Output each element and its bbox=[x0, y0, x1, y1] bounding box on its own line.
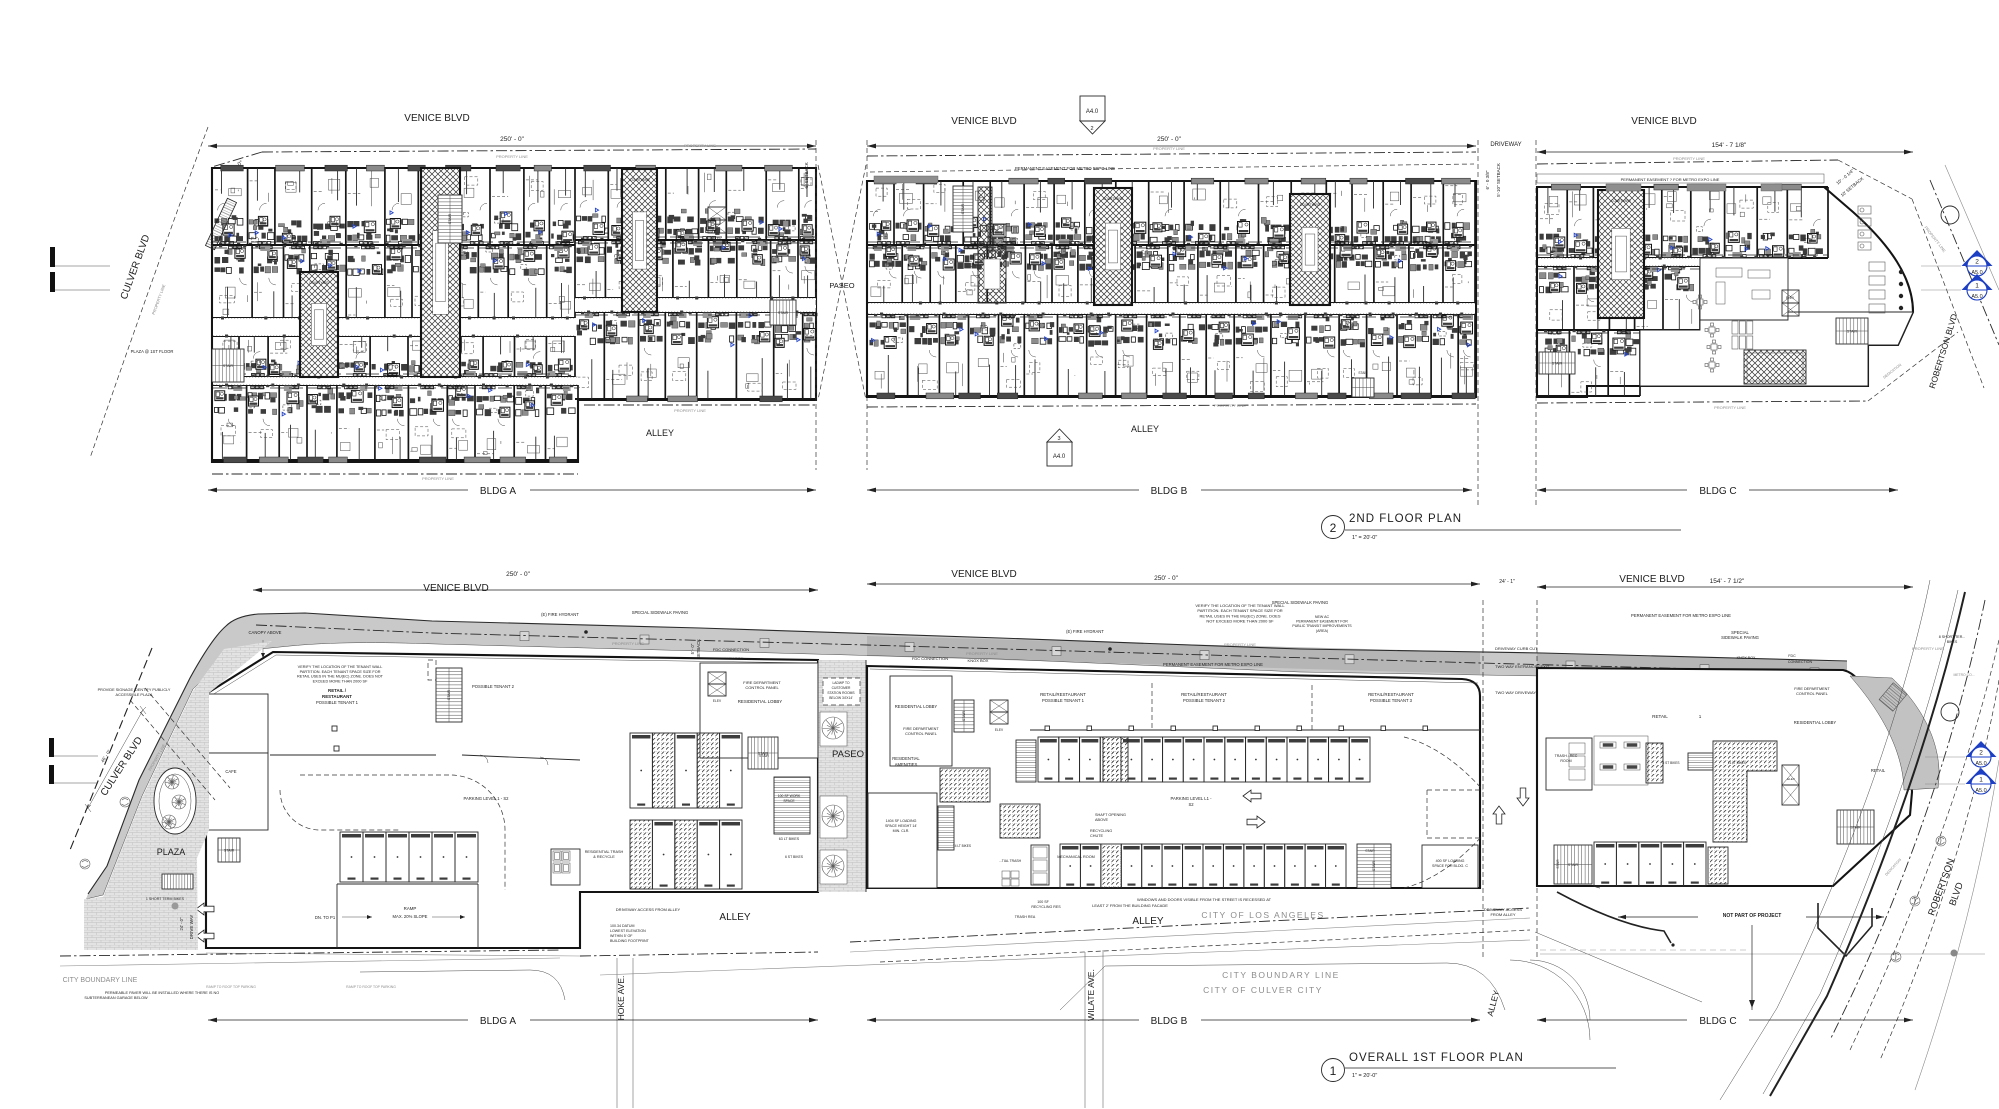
svg-text:STAIR: STAIR bbox=[447, 689, 451, 700]
svg-text:STAIR: STAIR bbox=[1365, 849, 1375, 853]
svg-text:STATION ROOMS: STATION ROOMS bbox=[827, 691, 855, 695]
svg-text:2: 2 bbox=[1979, 750, 1983, 757]
svg-text:RAMP TO ROOF TOP PARKING: RAMP TO ROOF TOP PARKING bbox=[206, 985, 256, 989]
svg-text:1" = 20'-0": 1" = 20'-0" bbox=[1352, 535, 1377, 541]
svg-text:PASEO: PASEO bbox=[832, 749, 864, 760]
svg-text:LEAST 2' FROM THE BUILDING FAC: LEAST 2' FROM THE BUILDING FACADE bbox=[1092, 903, 1168, 908]
svg-text:1: 1 bbox=[1979, 777, 1983, 784]
svg-text:RAMP: RAMP bbox=[404, 906, 417, 911]
svg-text:RESIDENTIAL LOBBY: RESIDENTIAL LOBBY bbox=[1794, 720, 1837, 725]
svg-text:ABOVE: ABOVE bbox=[1095, 818, 1109, 822]
svg-text:5'-10" SETBACK: 5'-10" SETBACK bbox=[1496, 163, 1501, 197]
svg-text:(E) FIRE HYDRANT: (E) FIRE HYDRANT bbox=[1066, 629, 1104, 634]
svg-text:PLAZA @ 1ST FLOOR: PLAZA @ 1ST FLOOR bbox=[131, 349, 174, 354]
svg-text:RETAIL: RETAIL bbox=[1871, 768, 1886, 773]
svg-text:CITY BOUNDARY LINE: CITY BOUNDARY LINE bbox=[63, 977, 138, 984]
svg-text:POSSIBLE TENANT 2: POSSIBLE TENANT 2 bbox=[1183, 698, 1226, 703]
svg-text:RESIDENTIAL: RESIDENTIAL bbox=[892, 756, 920, 761]
svg-text:CANOPY ABOVE: CANOPY ABOVE bbox=[249, 630, 282, 635]
svg-text:KNOX BOX: KNOX BOX bbox=[1737, 656, 1756, 660]
svg-text:PERMANENT EASEMENT FOR METRO E: PERMANENT EASEMENT FOR METRO EXPO LINE bbox=[1163, 662, 1263, 667]
svg-text:1: 1 bbox=[1699, 714, 1702, 719]
svg-text:250' - 0": 250' - 0" bbox=[1154, 575, 1178, 582]
svg-text:CONTROL PANEL: CONTROL PANEL bbox=[1796, 692, 1828, 696]
svg-text:1" = 20'-0": 1" = 20'-0" bbox=[1352, 1073, 1377, 1079]
svg-text:VENICE BLVD: VENICE BLVD bbox=[951, 569, 1016, 580]
svg-text:CITY OF CULVER CITY: CITY OF CULVER CITY bbox=[1203, 985, 1323, 995]
svg-text:MECHANICAL ROOM: MECHANICAL ROOM bbox=[1057, 855, 1095, 859]
svg-text:WINDOWS AND DOORS VISIBLE FROM: WINDOWS AND DOORS VISIBLE FROM THE STREE… bbox=[1137, 897, 1272, 902]
svg-text:MIN. CLR.: MIN. CLR. bbox=[893, 829, 910, 833]
svg-text:3: 3 bbox=[1057, 436, 1060, 442]
svg-text:PROPERTY LINE: PROPERTY LINE bbox=[1224, 642, 1256, 647]
svg-text:SIDEWALK PAVING: SIDEWALK PAVING bbox=[1721, 635, 1759, 640]
svg-text:STAIR: STAIR bbox=[223, 364, 234, 368]
svg-text:STAIR: STAIR bbox=[1568, 863, 1579, 867]
svg-text:RETAIL/RESTAURANT: RETAIL/RESTAURANT bbox=[1040, 692, 1086, 697]
svg-text:STAIR: STAIR bbox=[778, 311, 789, 315]
svg-text:CAFE: CAFE bbox=[225, 769, 236, 774]
svg-text:S2: S2 bbox=[1188, 802, 1194, 807]
svg-text:PARTITION. EACH TENANT SPACE S: PARTITION. EACH TENANT SPACE SIZE FOR bbox=[300, 670, 381, 674]
svg-text:DRIVEWAY: DRIVEWAY bbox=[1490, 142, 1521, 148]
svg-text:BLDG C: BLDG C bbox=[1699, 1016, 1736, 1027]
svg-text:154' - 7 1/2": 154' - 7 1/2" bbox=[1710, 578, 1745, 585]
svg-text:PROPERTY LINE: PROPERTY LINE bbox=[674, 408, 706, 413]
svg-text:WILATE AVE.: WILATE AVE. bbox=[1086, 969, 1096, 1021]
svg-text:FROM ALLEY: FROM ALLEY bbox=[1490, 912, 1515, 917]
svg-text:ELEV: ELEV bbox=[995, 728, 1004, 732]
svg-text:PERMEABLE PAVER WILL BE INSTAL: PERMEABLE PAVER WILL BE INSTALLED WHERE … bbox=[105, 991, 219, 995]
svg-text:CONNECTION: CONNECTION bbox=[1788, 660, 1813, 664]
svg-text:2: 2 bbox=[1090, 126, 1093, 132]
svg-text:ALLEY: ALLEY bbox=[719, 912, 750, 923]
svg-text:74 LT BIKES: 74 LT BIKES bbox=[953, 844, 971, 848]
svg-text:PARKING LEVEL 1 - S2: PARKING LEVEL 1 - S2 bbox=[464, 796, 510, 801]
svg-text:CONTROL PANEL: CONTROL PANEL bbox=[905, 732, 937, 736]
svg-text:6 ST BIKES: 6 ST BIKES bbox=[785, 855, 804, 859]
svg-text:METRO CO...: METRO CO... bbox=[1953, 673, 1974, 677]
svg-text:ALLEY: ALLEY bbox=[1131, 424, 1159, 434]
svg-text:SUBTERRANEAN GARAGE BELOW: SUBTERRANEAN GARAGE BELOW bbox=[84, 996, 148, 1000]
svg-text:STAIR: STAIR bbox=[961, 203, 965, 214]
svg-text:RETAIL/RESTAURANT: RETAIL/RESTAURANT bbox=[1368, 692, 1414, 697]
svg-text:100.34 DATUM: 100.34 DATUM bbox=[610, 924, 635, 928]
svg-text:5' SETBACK: 5' SETBACK bbox=[804, 162, 809, 188]
svg-text:OVERALL 1ST FLOOR PLAN: OVERALL 1ST FLOOR PLAN bbox=[1349, 1052, 1524, 1064]
svg-text:250' - 0": 250' - 0" bbox=[1157, 136, 1181, 143]
svg-text:63 LT BIKES: 63 LT BIKES bbox=[779, 837, 800, 841]
svg-text:COURTYARD: COURTYARD bbox=[309, 281, 330, 285]
svg-text:RETAIL USES IN THE MU(EC) ZONE: RETAIL USES IN THE MU(EC) ZONE. DOES NOT bbox=[297, 675, 384, 679]
svg-text:PROPERTY LINE: PROPERTY LINE bbox=[496, 154, 528, 159]
svg-text:RETAIL: RETAIL bbox=[1652, 714, 1668, 719]
svg-text:PERMANENT EASEMENT FOR: PERMANENT EASEMENT FOR bbox=[1296, 620, 1348, 624]
svg-text:PROPERTY LINE: PROPERTY LINE bbox=[1673, 156, 1705, 161]
svg-text:CITY OF LOS ANGELES: CITY OF LOS ANGELES bbox=[1201, 910, 1324, 920]
svg-text:400 SF LOADING: 400 SF LOADING bbox=[1436, 859, 1465, 863]
svg-text:ROOM: ROOM bbox=[1560, 759, 1571, 763]
svg-text:8 SHORT TER...: 8 SHORT TER... bbox=[1939, 635, 1966, 639]
svg-text:ELEV: ELEV bbox=[713, 699, 722, 703]
svg-text:COURTYARD: COURTYARD bbox=[1103, 197, 1124, 201]
svg-text:SHAFT OPENING: SHAFT OPENING bbox=[1095, 813, 1126, 817]
svg-text:2: 2 bbox=[1975, 259, 1979, 266]
svg-text:100 SF WORK: 100 SF WORK bbox=[778, 794, 801, 798]
svg-text:NOT PART OF PROJECT: NOT PART OF PROJECT bbox=[1723, 913, 1782, 919]
svg-text:DRIVEWAY ACCESS FROM ALLEY: DRIVEWAY ACCESS FROM ALLEY bbox=[616, 907, 681, 912]
svg-text:STAIR: STAIR bbox=[1372, 860, 1376, 871]
svg-text:VENICE BLVD: VENICE BLVD bbox=[423, 583, 488, 594]
svg-text:KNOX BOX: KNOX BOX bbox=[968, 658, 989, 663]
svg-text:STAIR: STAIR bbox=[1556, 859, 1560, 869]
svg-text:CUSTOMER: CUSTOMER bbox=[832, 686, 851, 690]
svg-text:RESIDENTIAL LOBBY: RESIDENTIAL LOBBY bbox=[895, 704, 938, 709]
svg-text:PERMANENT EASEMENT ? FOR METRO: PERMANENT EASEMENT ? FOR METRO EXPO LINE bbox=[1621, 177, 1720, 182]
svg-text:STAIR: STAIR bbox=[759, 754, 769, 758]
svg-text:BLDG A: BLDG A bbox=[480, 1016, 516, 1027]
svg-text:PROPERTY LINE: PROPERTY LINE bbox=[1912, 646, 1944, 651]
svg-text:A4.0: A4.0 bbox=[1086, 109, 1099, 115]
svg-text:A5.0: A5.0 bbox=[1975, 788, 1986, 794]
svg-text:FIRE DEPARTMENT: FIRE DEPARTMENT bbox=[903, 727, 939, 731]
svg-text:PROPERTY LINE: PROPERTY LINE bbox=[1214, 403, 1246, 408]
svg-text:& RECYCLE: & RECYCLE bbox=[593, 855, 615, 859]
svg-text:BLDG B: BLDG B bbox=[1151, 486, 1188, 497]
svg-text:PROPERTY LINE: PROPERTY LINE bbox=[1714, 405, 1746, 410]
svg-text:PERMANENT EASEMENT FOR METRO E: PERMANENT EASEMENT FOR METRO EXPO LINE bbox=[1631, 613, 1731, 618]
svg-text:24' - 1": 24' - 1" bbox=[1499, 579, 1515, 585]
svg-text:LADWP TO: LADWP TO bbox=[832, 681, 849, 685]
svg-text:6' - 0 3/8": 6' - 0 3/8" bbox=[1485, 170, 1490, 189]
svg-text:POSSIBLE TENANT 2: POSSIBLE TENANT 2 bbox=[472, 684, 515, 689]
svg-text:RECYCLING: RECYCLING bbox=[1090, 829, 1112, 833]
svg-text:PROPERTY LINE: PROPERTY LINE bbox=[422, 476, 454, 481]
svg-text:HOKE AVE.: HOKE AVE. bbox=[616, 976, 626, 1021]
svg-text:STAIR: STAIR bbox=[1552, 362, 1563, 366]
svg-text:SPECIAL SIDEWALK PAVING: SPECIAL SIDEWALK PAVING bbox=[632, 610, 689, 615]
svg-text:RAMP TO ROOF TOP PARKING: RAMP TO ROOF TOP PARKING bbox=[346, 985, 396, 989]
svg-text:A5.0: A5.0 bbox=[1975, 761, 1986, 767]
svg-text:A4.0: A4.0 bbox=[1053, 454, 1066, 460]
svg-text:RESTAURANT: RESTAURANT bbox=[322, 694, 352, 699]
svg-text:RECYCLING RES: RECYCLING RES bbox=[1031, 905, 1061, 909]
svg-text:250' - 0": 250' - 0" bbox=[506, 571, 530, 578]
svg-text:AMENITIES: AMENITIES bbox=[895, 762, 918, 767]
svg-text:TWO WAY DRIVEWAY: TWO WAY DRIVEWAY bbox=[1495, 690, 1536, 695]
svg-text:ELEV: ELEV bbox=[1787, 777, 1795, 781]
svg-text:STAIR: STAIR bbox=[448, 213, 452, 224]
svg-text:ACCESSIBLE PLAZA: ACCESSIBLE PLAZA bbox=[116, 693, 153, 697]
svg-text:CHUTE: CHUTE bbox=[1090, 834, 1104, 838]
svg-text:1 SHORT TERM BIKES: 1 SHORT TERM BIKES bbox=[146, 897, 185, 901]
svg-text:LOWEST ELEVATION: LOWEST ELEVATION bbox=[610, 929, 646, 933]
svg-text:BUILDING FOOTPRINT: BUILDING FOOTPRINT bbox=[610, 939, 650, 943]
svg-text:FDC: FDC bbox=[1788, 654, 1796, 658]
svg-text:DRIVEWAY CURB CUT: DRIVEWAY CURB CUT bbox=[1495, 646, 1538, 651]
svg-text:(AREA): (AREA) bbox=[1316, 629, 1328, 633]
svg-text:FIRE DEPARTMENT: FIRE DEPARTMENT bbox=[1794, 687, 1830, 691]
svg-text:1: 1 bbox=[1975, 283, 1979, 290]
svg-text:24' - 0": 24' - 0" bbox=[179, 917, 184, 931]
svg-text:WITHIN 5' OF: WITHIN 5' OF bbox=[610, 934, 633, 938]
svg-text:POSSIBLE TENANT 1: POSSIBLE TENANT 1 bbox=[1042, 698, 1085, 703]
svg-text:VERIFY THE LOCATION OF THE TEN: VERIFY THE LOCATION OF THE TENANT WALL bbox=[298, 665, 383, 669]
svg-text:CITY BOUNDARY LINE: CITY BOUNDARY LINE bbox=[1222, 970, 1340, 980]
svg-text:COURTYARD: COURTYARD bbox=[1300, 203, 1321, 207]
svg-text:RESIDENTIAL LOBBY: RESIDENTIAL LOBBY bbox=[738, 699, 783, 704]
svg-text:5 ST BIKES: 5 ST BIKES bbox=[1663, 761, 1680, 765]
svg-text:VENICE BLVD: VENICE BLVD bbox=[951, 116, 1016, 127]
svg-text:SETBACK: SETBACK bbox=[696, 639, 701, 659]
svg-text:2: 2 bbox=[1330, 521, 1337, 535]
svg-text:FDC CONNECTION: FDC CONNECTION bbox=[912, 656, 948, 661]
svg-text:BLDG B: BLDG B bbox=[1151, 1016, 1188, 1027]
svg-text:STAIR: STAIR bbox=[962, 710, 966, 721]
svg-text:DRIVE WAY: DRIVE WAY bbox=[189, 915, 194, 940]
svg-text:STAIR: STAIR bbox=[1358, 371, 1368, 375]
svg-text:ALLEY: ALLEY bbox=[1132, 916, 1163, 927]
svg-text:EXCEED MORE THAN 2000 SF: EXCEED MORE THAN 2000 SF bbox=[313, 679, 368, 683]
svg-text:VENICE BLVD: VENICE BLVD bbox=[1619, 574, 1684, 585]
svg-text:A5.0: A5.0 bbox=[1971, 294, 1982, 300]
svg-text:RETAIL /: RETAIL / bbox=[328, 688, 347, 693]
svg-text:2ND FLOOR PLAN: 2ND FLOOR PLAN bbox=[1349, 513, 1462, 525]
svg-text:NEW AC: NEW AC bbox=[1315, 615, 1330, 619]
svg-text:FDC CONNECTION: FDC CONNECTION bbox=[713, 647, 749, 652]
svg-text:PLAZA: PLAZA bbox=[157, 847, 186, 857]
svg-text:PERMANENT EASEMENT FOR METRO E: PERMANENT EASEMENT FOR METRO EXPO LINE bbox=[1015, 166, 1115, 171]
svg-text:ALLEY: ALLEY bbox=[646, 428, 674, 438]
svg-text:SPACE: SPACE bbox=[783, 799, 795, 803]
svg-text:21 LT BIKES: 21 LT BIKES bbox=[1728, 761, 1746, 765]
svg-text:PROPERTY LINE: PROPERTY LINE bbox=[1153, 146, 1185, 151]
svg-text:(E) FIRE HYDRANT: (E) FIRE HYDRANT bbox=[541, 612, 579, 617]
svg-text:PARKING LEVEL L1 -: PARKING LEVEL L1 - bbox=[1171, 796, 1213, 801]
svg-text:PASEO: PASEO bbox=[829, 281, 854, 290]
svg-text:COURTYARD: COURTYARD bbox=[1611, 199, 1632, 203]
svg-text:RESIDENTIAL TRASH: RESIDENTIAL TRASH bbox=[585, 850, 624, 854]
svg-text:STAIR: STAIR bbox=[224, 849, 235, 853]
svg-text:BLDG A: BLDG A bbox=[480, 486, 516, 497]
svg-text:5' - 0": 5' - 0" bbox=[690, 643, 695, 654]
svg-text:BELOW 34'X14': BELOW 34'X14' bbox=[829, 696, 853, 700]
svg-text:POSSIBLE TENANT 3: POSSIBLE TENANT 3 bbox=[1370, 698, 1413, 703]
svg-text:100 SF: 100 SF bbox=[1037, 900, 1049, 904]
svg-text:PROPERTY LINE: PROPERTY LINE bbox=[612, 641, 644, 646]
svg-text:1404 SF LOADING: 1404 SF LOADING bbox=[886, 819, 917, 823]
svg-text:PROPERTY LINE: PROPERTY LINE bbox=[684, 143, 716, 148]
svg-text:RETAIL/RESTAURANT: RETAIL/RESTAURANT bbox=[1181, 692, 1227, 697]
svg-text:BLDG C: BLDG C bbox=[1699, 486, 1736, 497]
svg-text:SPACE FOR BLDG. C: SPACE FOR BLDG. C bbox=[1432, 864, 1468, 868]
svg-text:STAIR: STAIR bbox=[1847, 330, 1858, 334]
svg-text:VENICE BLVD: VENICE BLVD bbox=[1631, 116, 1696, 127]
svg-text:SPACE HEIGHT 14': SPACE HEIGHT 14' bbox=[885, 824, 917, 828]
svg-text:250' - 0": 250' - 0" bbox=[500, 136, 524, 143]
svg-text:VENICE BLVD: VENICE BLVD bbox=[404, 113, 469, 124]
svg-text:COURTYARD: COURTYARD bbox=[630, 178, 651, 182]
svg-text:CONTROL PANEL: CONTROL PANEL bbox=[745, 685, 779, 690]
svg-text:NOT EXCEED MORE THAN 2000 SF: NOT EXCEED MORE THAN 2000 SF bbox=[1206, 619, 1274, 624]
svg-text:1: 1 bbox=[1330, 1064, 1337, 1078]
svg-text:ELEV: ELEV bbox=[713, 237, 722, 241]
svg-text:DN. TO P1: DN. TO P1 bbox=[315, 915, 336, 920]
svg-text:TRASH REA: TRASH REA bbox=[1015, 915, 1036, 919]
svg-text:PUBLIC TRANSIT IMPROVEMENTS: PUBLIC TRANSIT IMPROVEMENTS bbox=[1292, 624, 1352, 628]
svg-text:MAX. 20% SLOPE: MAX. 20% SLOPE bbox=[393, 914, 428, 919]
svg-text:PROPERTY LINE: PROPERTY LINE bbox=[966, 651, 998, 656]
svg-text:POSSIBLE TENANT 1: POSSIBLE TENANT 1 bbox=[316, 700, 359, 705]
svg-text:154' - 7 1/8": 154' - 7 1/8" bbox=[1712, 142, 1747, 149]
svg-text:...TIAL TRASH: ...TIAL TRASH bbox=[999, 859, 1022, 863]
svg-text:ELEV: ELEV bbox=[1786, 296, 1795, 300]
